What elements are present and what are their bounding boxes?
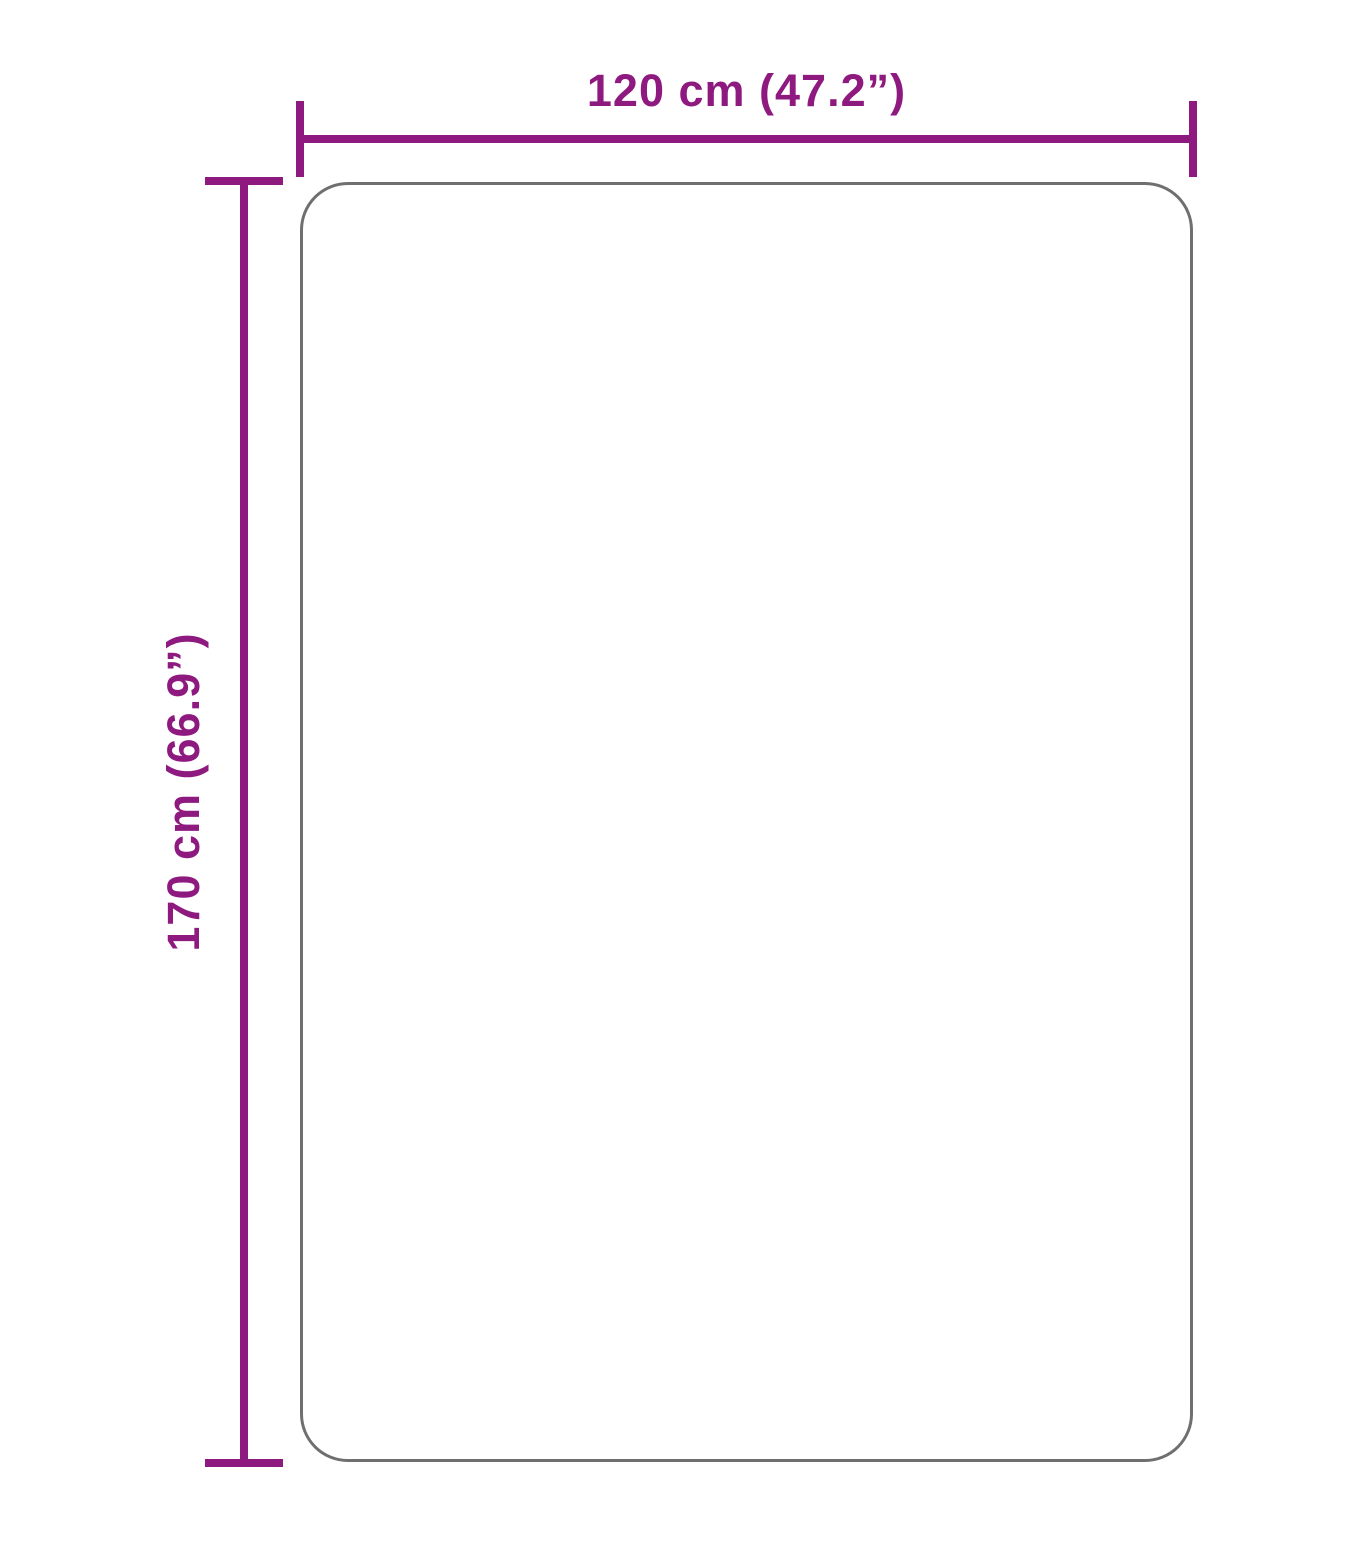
- height-dimension-tick-bottom: [205, 1459, 283, 1467]
- height-dimension-tick-top: [205, 177, 283, 185]
- dimension-diagram: 120 cm (47.2”) 170 cm (66.9”): [0, 0, 1360, 1555]
- width-dimension-tick-left: [296, 101, 304, 177]
- width-dimension-label: 120 cm (47.2”): [300, 66, 1193, 116]
- height-dimension-line: [240, 178, 248, 1466]
- width-dimension-line: [300, 135, 1193, 143]
- product-outline: [300, 182, 1193, 1462]
- width-dimension-tick-right: [1189, 101, 1197, 177]
